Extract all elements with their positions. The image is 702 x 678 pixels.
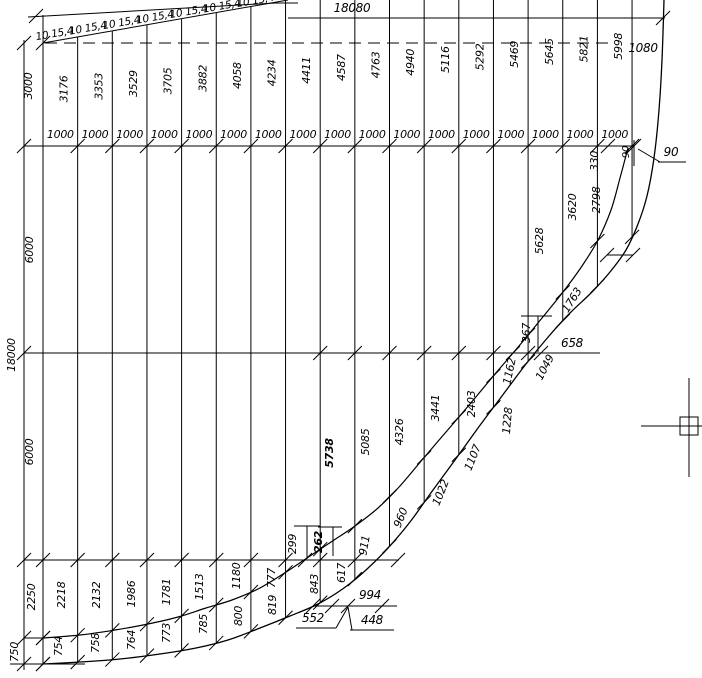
deck-plate-label: 10 15,4 [236, 0, 275, 10]
drawing-canvas: 3176335335293705388240584234441145874763… [0, 0, 702, 678]
spacing-label: 1000 [393, 128, 420, 141]
dim-label: 994 [359, 588, 381, 602]
dim-label: 90 [664, 145, 679, 159]
spacing-label: 1000 [289, 128, 316, 141]
dim-label: 1180 [230, 562, 243, 589]
station-height-label: 3705 [162, 67, 175, 94]
station-height-label: 4940 [404, 49, 417, 76]
dim-label: 2798 [590, 186, 603, 213]
dimension-line [638, 149, 660, 162]
dim-label: 552 [302, 611, 324, 625]
dim-label: 2132 [90, 581, 103, 608]
dim-label: 2250 [25, 583, 38, 610]
dim-label: 819 [266, 595, 279, 615]
dim-label: 843 [308, 574, 321, 594]
dim-label: 777 [265, 568, 278, 588]
dim-label: 4326 [393, 418, 406, 445]
dim-label: 367 [520, 323, 533, 343]
technical-drawing-svg: 3176335335293705388240584234441145874763… [0, 0, 702, 678]
labels-group: 3176335335293705388240584234441145874763… [5, 0, 679, 662]
station-height-label: 4763 [370, 51, 383, 78]
dim-label: 800 [232, 606, 245, 626]
dim-label: 330 [588, 151, 601, 171]
dim-label: 5085 [359, 428, 372, 455]
dim-label: 448 [361, 613, 384, 627]
spacing-label: 1000 [601, 128, 628, 141]
station-height-label: 3353 [92, 73, 105, 100]
station-height-label: 4234 [266, 59, 279, 86]
spacing-label: 1000 [151, 128, 178, 141]
dim-label: 1513 [193, 573, 206, 600]
station-height-label: 4058 [231, 62, 244, 89]
dim-label: 1080 [628, 41, 658, 55]
station-height-label: 3529 [127, 70, 140, 97]
spacing-label: 1000 [567, 128, 594, 141]
dim-label: 6000 [23, 438, 36, 465]
station-height-label: 5292 [473, 43, 486, 70]
dim-label: 90 [621, 146, 632, 158]
spacing-label: 1000 [324, 128, 351, 141]
dimension-line [348, 607, 352, 630]
spacing-label: 1000 [255, 128, 282, 141]
station-height-label: 5469 [508, 41, 521, 68]
dim-label: 785 [197, 614, 210, 634]
dim-label: 1986 [125, 580, 138, 607]
station-height-label: 3882 [196, 65, 209, 92]
dim-label: 764 [125, 630, 138, 650]
station-height-label: 4587 [335, 54, 348, 81]
station-height-label: 5116 [439, 46, 452, 73]
dim-label: 3441 [429, 395, 442, 422]
dim-label: 3620 [566, 193, 579, 220]
station-height-label: 5645 [543, 38, 556, 65]
dim-label: 5628 [533, 227, 546, 254]
spacing-label: 1000 [186, 128, 213, 141]
dim-label: 773 [160, 623, 173, 643]
dim-label: 758 [89, 633, 102, 653]
station-height-label: 5998 [612, 33, 625, 60]
spacing-label: 1000 [220, 128, 247, 141]
dim-label: 18080 [334, 1, 371, 15]
dim-label: 6000 [23, 236, 36, 263]
dim-label: 658 [561, 336, 584, 350]
spacing-label: 1000 [463, 128, 490, 141]
dim-label: 754 [52, 636, 65, 656]
dim-label: 2403 [465, 390, 478, 417]
dim-label: 5738 [323, 438, 336, 468]
spacing-label: 1000 [428, 128, 455, 141]
spacing-label: 1000 [532, 128, 559, 141]
outer-hull-curve [43, 0, 664, 664]
spacing-label: 1000 [82, 128, 109, 141]
dim-label: 2218 [55, 581, 68, 608]
dimension-line [336, 607, 348, 628]
dimension-lines-group [10, 0, 686, 670]
dim-label: 299 [286, 534, 299, 554]
station-height-label: 3176 [58, 75, 71, 102]
spacing-label: 1000 [47, 128, 74, 141]
dim-label: 1049 [533, 352, 557, 382]
dim-label: 1228 [500, 406, 515, 434]
dim-label: 3000 [22, 72, 35, 99]
dim-label: 1022 [430, 478, 452, 508]
dim-label: 262 [312, 530, 325, 553]
hull-curves-group [43, 0, 664, 664]
dim-label: 911 [356, 534, 372, 556]
dim-label: 1781 [160, 579, 173, 606]
station-height-label: 5821 [577, 36, 590, 63]
spacing-label: 1000 [359, 128, 386, 141]
dim-label: 18000 [5, 338, 18, 372]
dim-label: 617 [335, 563, 348, 583]
crosshair-symbol [641, 378, 702, 477]
spacing-label: 1000 [497, 128, 524, 141]
station-height-label: 4411 [300, 57, 313, 84]
spacing-label: 1000 [116, 128, 143, 141]
dim-label: 1162 [500, 357, 518, 386]
dim-label: 750 [8, 642, 21, 662]
